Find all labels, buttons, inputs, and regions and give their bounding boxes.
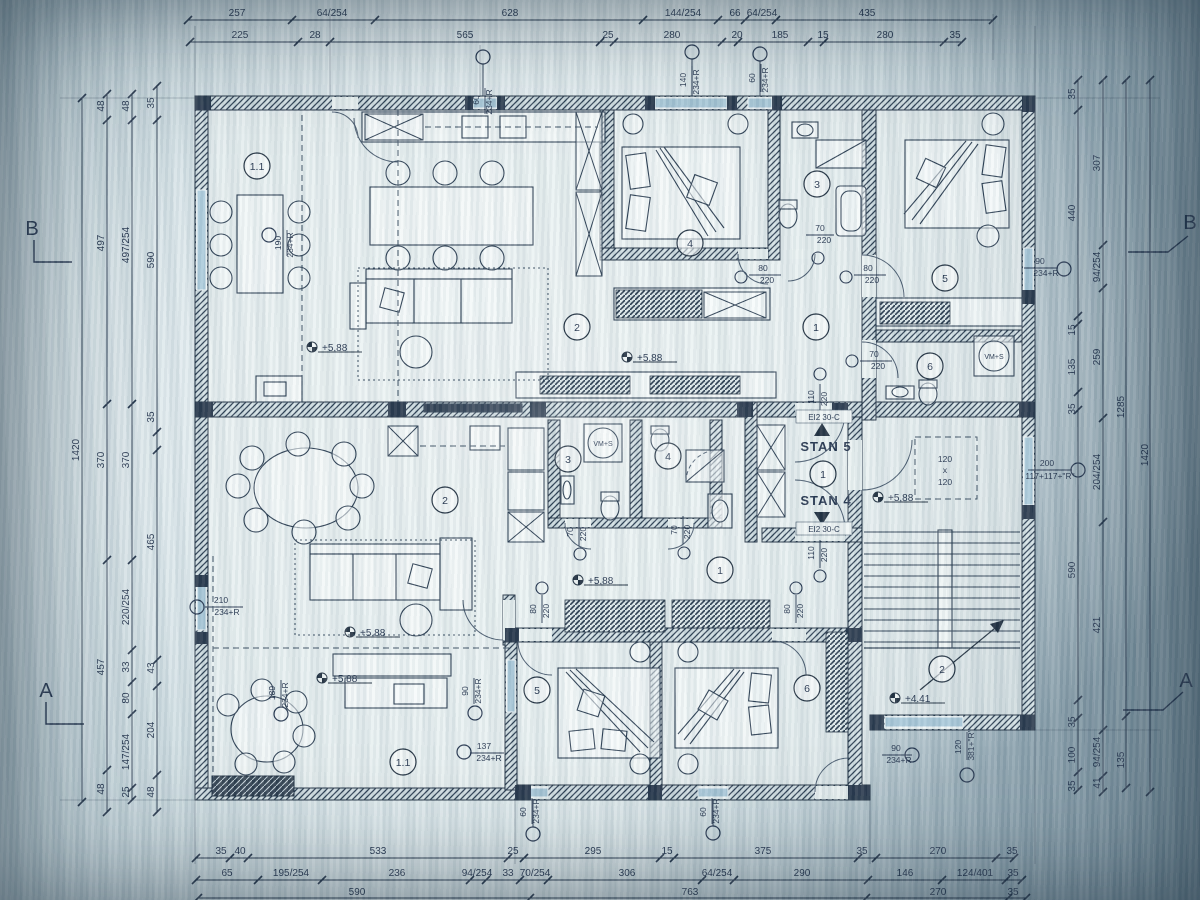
room-number: 5	[942, 273, 948, 285]
dim-label: 135	[1067, 358, 1078, 375]
window-size-label: 190	[273, 236, 283, 250]
dim-label: 457	[96, 658, 107, 675]
dim-label: 43	[146, 662, 157, 674]
dim-label: 65	[221, 868, 233, 879]
washbasin	[561, 476, 574, 504]
window-size-label: 234+R	[285, 232, 295, 257]
dim-label: 465	[146, 533, 157, 550]
dim-label: 35	[146, 411, 157, 423]
chair-or-table-circle	[288, 267, 310, 289]
sofa	[310, 538, 472, 610]
dim-label: 100	[1067, 746, 1078, 763]
window-size-label: 234+R	[484, 89, 494, 114]
bed	[558, 668, 660, 758]
dim-label: 1420	[71, 438, 82, 461]
chair-or-table-circle	[235, 753, 257, 775]
bed	[904, 140, 1009, 228]
dim-label: 48	[121, 100, 132, 112]
chair-or-table-circle	[433, 161, 457, 185]
window-size-label: 60	[471, 95, 481, 105]
washbasin	[886, 386, 914, 399]
dim-label: 435	[859, 8, 876, 19]
room-number: 5	[534, 685, 540, 697]
door-size-label: 80	[863, 263, 873, 273]
toilet	[779, 200, 797, 228]
chair-or-table-circle	[728, 114, 748, 134]
dim-label: 20	[731, 30, 743, 41]
dim-label: 80	[121, 692, 132, 704]
chair-or-table-circle	[433, 246, 457, 270]
washbasin	[792, 122, 818, 138]
crossed-cabinet	[757, 472, 785, 517]
crossed-cabinet	[365, 114, 423, 140]
opening-tag-circle	[526, 827, 540, 841]
sofa	[350, 269, 512, 329]
chair-or-table-circle	[386, 246, 410, 270]
crossed-cabinet	[576, 112, 602, 190]
door-size-label: 220	[819, 548, 829, 562]
window-size-label: 381+"R"	[966, 729, 976, 760]
chair-or-table-circle	[288, 201, 310, 223]
dim-label: 94/254	[1092, 251, 1103, 282]
dim-label: 195/254	[273, 868, 310, 879]
chair-or-table-circle	[286, 432, 310, 456]
dim-label: 41	[1092, 777, 1103, 789]
dim-label: 48	[146, 786, 157, 798]
elevation-label: +5,88	[360, 628, 386, 639]
dim-label: 497/254	[121, 226, 132, 263]
opening-tag-circle	[1057, 262, 1071, 276]
bed	[622, 147, 740, 239]
chair-or-table-circle	[623, 114, 643, 134]
door-size-label: 80	[528, 604, 538, 614]
window-size-label: 234+R	[886, 755, 911, 765]
dim-label: 25	[507, 846, 519, 857]
dim-label: 533	[370, 846, 387, 857]
dim-label: 25	[121, 786, 132, 798]
chair-or-table-circle	[240, 446, 264, 470]
chair-or-table-circle	[480, 246, 504, 270]
room-number: 1.1	[250, 161, 265, 173]
room-number: 3	[565, 454, 571, 466]
window-size-label: 60	[518, 807, 528, 817]
chair-or-table-circle	[630, 642, 650, 662]
floor-plan-drawing: 25764/254628144/2546664/2544352252856525…	[0, 0, 1200, 900]
dim-label: 144/254	[665, 8, 702, 19]
chair-or-table-circle	[400, 604, 432, 636]
dim-label: 280	[877, 30, 894, 41]
door-size-label: 220	[817, 235, 831, 245]
dim-label: 440	[1067, 204, 1078, 221]
window-size-label: 90	[1035, 256, 1045, 266]
fire-rating-label: EI2 30-C	[808, 413, 840, 422]
dim-label: 66	[729, 8, 741, 19]
dim-label: 35	[949, 30, 961, 41]
fire-rating-label: EI2 30-C	[808, 525, 840, 534]
dim-label: 204	[146, 721, 157, 738]
dim-label: 565	[457, 30, 474, 41]
section-letter: B	[1183, 212, 1196, 234]
toilet	[601, 492, 619, 520]
stair-stringer	[938, 530, 952, 648]
crossed-cabinet	[704, 292, 766, 318]
dim-label: 590	[146, 251, 157, 268]
dining-table	[370, 187, 533, 245]
chair-or-table-circle	[273, 751, 295, 773]
dim-label: 375	[755, 846, 772, 857]
dim-label: 64/254	[747, 8, 778, 19]
section-letter: A	[39, 680, 53, 702]
dim-label: 204/254	[1092, 453, 1103, 490]
door-size-label: 110	[806, 390, 816, 404]
dim-label: 35	[215, 846, 227, 857]
dim-label: 497	[96, 234, 107, 251]
dim-label: 590	[349, 887, 366, 898]
dim-label: 35	[1067, 780, 1078, 792]
window-size-label: 60	[698, 807, 708, 817]
window-size-label: 60	[747, 73, 757, 83]
dim-label: 295	[585, 846, 602, 857]
blueprint-photo: 25764/254628144/2546664/2544352252856525…	[0, 0, 1200, 900]
opening-tag-circle	[753, 47, 767, 61]
door-size-label: 220	[819, 392, 829, 406]
dim-label: 236	[389, 868, 406, 879]
window-size-label: 117+117+"R"	[1025, 471, 1074, 481]
washer-label: VM+S	[984, 354, 1004, 361]
room-number: 1	[717, 565, 723, 577]
elevation-label: +5,88	[332, 674, 358, 685]
chair-or-table-circle	[226, 474, 250, 498]
elevation-label: +5,88	[888, 493, 914, 504]
washer-label: VM+S	[593, 441, 613, 448]
door-size-label: 220	[760, 275, 774, 285]
dim-label: 35	[1006, 846, 1018, 857]
dim-label: 35	[1067, 88, 1078, 100]
room-number: 1	[820, 469, 826, 481]
elevation-label: +5,88	[637, 353, 663, 364]
window-size-label: 234+R	[280, 682, 290, 707]
window-size-label: 200	[1040, 458, 1054, 468]
opening-tag-circle	[706, 826, 720, 840]
dim-label: 1285	[1116, 395, 1127, 418]
window-size-label: 234+R	[473, 678, 483, 703]
door-size-label: 220	[795, 604, 805, 618]
dim-label: 124/401	[957, 868, 994, 879]
chair-or-table-circle	[210, 267, 232, 289]
room-number: 4	[665, 451, 671, 463]
chair-or-table-circle	[678, 754, 698, 774]
crossed-cabinet	[508, 512, 544, 542]
chair-or-table-circle	[630, 754, 650, 774]
room-number: 2	[442, 495, 448, 507]
window-size-label: 234+R	[214, 607, 239, 617]
room-number: 1	[813, 322, 819, 334]
dim-label: 270	[930, 887, 947, 898]
dim-label: 370	[121, 451, 132, 468]
dim-label: 48	[96, 100, 107, 112]
dim-label: 35	[1067, 716, 1078, 728]
dim-label: 185	[772, 30, 789, 41]
room-number: 3	[814, 179, 820, 191]
dimension-tick	[862, 894, 870, 900]
dim-label: 25	[602, 30, 614, 41]
elevation-label: +4.41	[905, 694, 931, 705]
bed	[675, 668, 778, 748]
chair-or-table-circle	[400, 336, 432, 368]
shaft-size-label: 120	[938, 454, 952, 464]
window-size-label: 234+R	[711, 798, 721, 823]
dim-label: 64/254	[317, 8, 348, 19]
chair-or-table-circle	[678, 642, 698, 662]
elevation-label: +5,88	[322, 343, 348, 354]
room-number: 6	[927, 361, 933, 373]
dim-label: 70/254	[520, 868, 551, 879]
shower	[686, 450, 724, 482]
dim-label: 590	[1067, 561, 1078, 578]
dim-label: 15	[661, 846, 673, 857]
dim-label: 35	[1067, 403, 1078, 415]
room-number: 2	[574, 322, 580, 334]
window-size-label: 234+R	[760, 67, 770, 92]
door-size-label: 110	[806, 546, 816, 560]
toilet	[919, 380, 937, 405]
room-number: 6	[804, 683, 810, 695]
chair-or-table-circle	[210, 234, 232, 256]
dim-label: 146	[897, 868, 914, 879]
dim-label: 257	[229, 8, 246, 19]
dimension-tick	[1022, 894, 1030, 900]
chair-or-table-circle	[217, 694, 239, 716]
elevation-label: +5,88	[588, 576, 614, 587]
bathtub	[836, 186, 866, 236]
window-size-label: 90	[891, 743, 901, 753]
window-size-label: 120	[953, 740, 963, 754]
room-number: 4	[687, 238, 693, 250]
window-size-label: 234+R	[691, 69, 701, 94]
dim-label: 48	[96, 783, 107, 795]
dim-label: 1420	[1140, 443, 1151, 466]
dim-label: 40	[234, 846, 246, 857]
window-size-label: 137	[477, 741, 491, 751]
opening-tag-circle	[476, 50, 490, 64]
apartment-label: STAN 4	[800, 493, 851, 508]
washbasin	[708, 494, 732, 528]
door-size-label: 220	[871, 361, 885, 371]
chair-or-table-circle	[293, 725, 315, 747]
door-size-label: 220	[541, 604, 551, 618]
dim-label: 220/254	[121, 588, 132, 625]
shaft-size-label: 120	[938, 477, 952, 487]
door-size-label: 70	[669, 525, 679, 535]
dim-label: 290	[794, 868, 811, 879]
dimension-tick	[194, 894, 202, 900]
section-letter: A	[1179, 670, 1193, 692]
crossed-cabinet	[388, 426, 418, 456]
section-letter: B	[25, 218, 38, 240]
chair-or-table-circle	[480, 161, 504, 185]
fireplace	[256, 376, 302, 402]
dim-label: 280	[664, 30, 681, 41]
crossed-cabinet	[576, 192, 602, 276]
dimension-tick	[526, 894, 534, 900]
dim-label: 763	[682, 887, 699, 898]
window-size-label: 234+R	[531, 798, 541, 823]
door-size-label: 80	[782, 604, 792, 614]
window-size-label: 90	[460, 686, 470, 696]
door-size-label: 220	[865, 275, 879, 285]
dim-label: 259	[1092, 348, 1103, 365]
chair-or-table-circle	[977, 225, 999, 247]
chair-or-table-circle	[982, 113, 1004, 135]
dim-label: 306	[619, 868, 636, 879]
dim-label: 94/254	[462, 868, 493, 879]
shower	[816, 140, 866, 168]
dim-label: 147/254	[121, 733, 132, 770]
dim-label: 94/254	[1092, 736, 1103, 767]
window-size-label: 140	[678, 73, 688, 87]
opening-tag-circle	[685, 45, 699, 59]
dim-label: 628	[502, 8, 519, 19]
opening-tag-circle	[960, 768, 974, 782]
door-size-label: 80	[758, 263, 768, 273]
dim-label: 35	[856, 846, 868, 857]
door-size-label: 70	[565, 527, 575, 537]
dim-label: 225	[232, 30, 249, 41]
chair-or-table-circle	[350, 474, 374, 498]
terrace-planter	[212, 776, 294, 796]
door-size-label: 220	[682, 525, 692, 539]
dim-label: 35	[1007, 868, 1019, 879]
room-number: 1.1	[396, 757, 411, 769]
door-size-label: 220	[578, 527, 588, 541]
door-size-label: 70	[815, 223, 825, 233]
dim-label: 370	[96, 451, 107, 468]
dim-label: 35	[146, 97, 157, 109]
window-size-label: 210	[214, 595, 228, 605]
window-size-label: 189	[267, 686, 277, 700]
apartment-label: STAN 5	[800, 439, 851, 454]
dim-label: 64/254	[702, 868, 733, 879]
tv-bench	[424, 404, 522, 412]
dim-label: 35	[1007, 887, 1019, 898]
dim-label: 307	[1092, 154, 1103, 171]
dim-label: 270	[930, 846, 947, 857]
chair-or-table-circle	[244, 508, 268, 532]
window-size-label: 234+R	[1033, 268, 1058, 278]
window-size-label: 234+R	[476, 753, 501, 763]
dim-label: 33	[502, 868, 514, 879]
dim-label: 421	[1092, 616, 1103, 633]
dim-label: 33	[121, 661, 132, 673]
chair-or-table-circle	[210, 201, 232, 223]
chair-or-table-circle	[332, 442, 356, 466]
dim-label: 135	[1116, 751, 1127, 768]
dim-label: 28	[309, 30, 321, 41]
door-size-label: 70	[869, 349, 879, 359]
chair-or-table-circle	[336, 506, 360, 530]
dim-label: 15	[1067, 324, 1078, 336]
room-number: 2	[939, 664, 945, 676]
crossed-cabinet	[757, 425, 785, 470]
dim-label: 15	[817, 30, 829, 41]
